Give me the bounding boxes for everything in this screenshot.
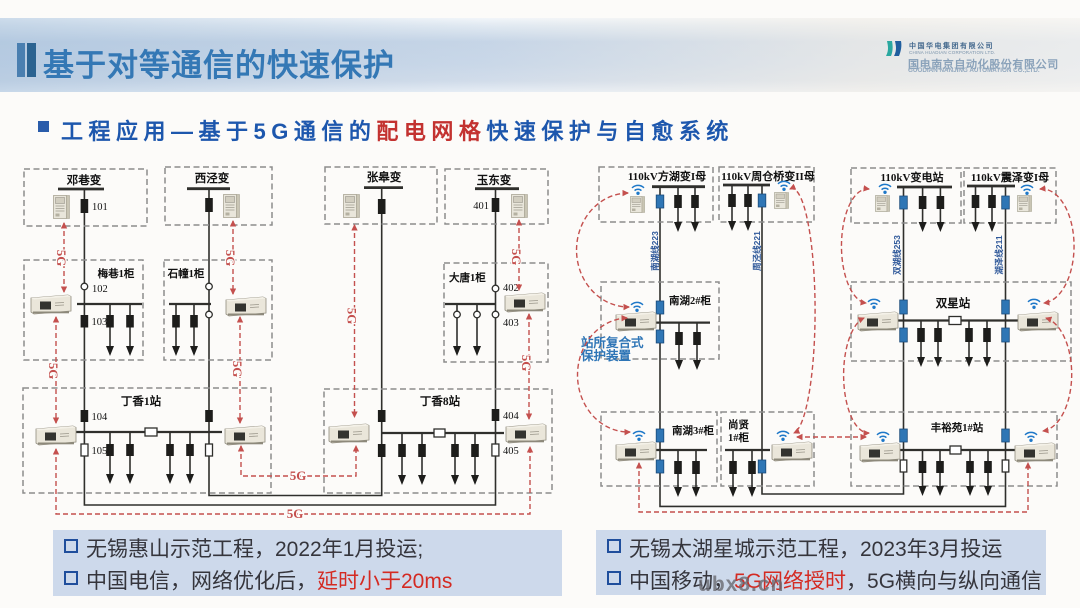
svg-text:1#柜: 1#柜 — [728, 431, 750, 444]
svg-text:402: 402 — [503, 283, 519, 294]
svg-text:玉东变: 玉东变 — [477, 173, 512, 187]
svg-text:110kV方湖变I母: 110kV方湖变I母 — [628, 169, 706, 183]
svg-text:湖泽线211: 湖泽线211 — [994, 235, 1004, 274]
svg-text:110kV周仓桥变II母: 110kV周仓桥变II母 — [721, 169, 815, 183]
svg-text:103: 103 — [92, 317, 108, 328]
svg-text:丁香1站: 丁香1站 — [121, 394, 162, 408]
svg-text:石幢1柜: 石幢1柜 — [167, 267, 205, 280]
svg-text:双湖线253: 双湖线253 — [892, 235, 902, 275]
svg-text:110kV震泽变I母: 110kV震泽变I母 — [971, 170, 1049, 184]
svg-text:5G: 5G — [519, 355, 534, 372]
svg-text:南湖2#柜: 南湖2#柜 — [669, 294, 711, 307]
svg-text:邓巷变: 邓巷变 — [67, 173, 102, 187]
svg-text:南湖线223: 南湖线223 — [650, 231, 660, 271]
svg-text:101: 101 — [92, 202, 108, 213]
svg-text:周泾线221: 周泾线221 — [752, 231, 762, 271]
svg-text:5G: 5G — [509, 249, 524, 266]
svg-text:5G: 5G — [54, 250, 69, 267]
svg-text:双星站: 双星站 — [935, 296, 971, 310]
svg-text:尚贤: 尚贤 — [728, 418, 749, 431]
svg-text:保护装置: 保护装置 — [580, 348, 632, 363]
svg-text:105: 105 — [92, 446, 108, 457]
svg-text:梅巷1柜: 梅巷1柜 — [98, 267, 135, 280]
svg-text:104: 104 — [92, 412, 109, 423]
svg-text:110kV变电站: 110kV变电站 — [881, 170, 944, 184]
svg-text:南湖3#柜: 南湖3#柜 — [672, 424, 714, 437]
svg-text:丁香8站: 丁香8站 — [420, 394, 461, 408]
svg-text:5G: 5G — [230, 361, 245, 378]
svg-text:5G: 5G — [287, 506, 304, 521]
svg-text:丰裕苑1#站: 丰裕苑1#站 — [931, 421, 984, 434]
svg-text:张皋变: 张皋变 — [367, 170, 402, 184]
svg-text:5G: 5G — [46, 363, 61, 380]
svg-text:大唐1柜: 大唐1柜 — [449, 271, 486, 284]
svg-text:404: 404 — [503, 411, 520, 422]
svg-text:西泾变: 西泾变 — [195, 171, 230, 185]
svg-text:5G: 5G — [345, 308, 360, 325]
svg-text:405: 405 — [503, 446, 519, 457]
svg-text:5G: 5G — [223, 250, 238, 267]
svg-text:102: 102 — [92, 284, 108, 295]
svg-text:401: 401 — [473, 201, 489, 212]
svg-text:5G: 5G — [290, 468, 307, 483]
svg-text:403: 403 — [503, 318, 519, 329]
